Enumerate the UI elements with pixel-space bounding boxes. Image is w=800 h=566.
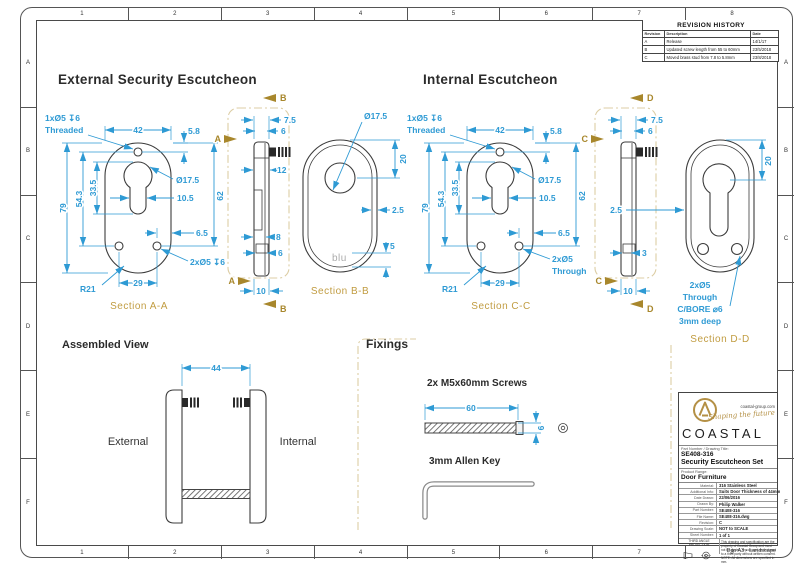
section-dd-caption: Section D-D	[690, 334, 749, 345]
dim-int-height: 79	[420, 203, 430, 213]
dim-bb-cylinder-dia: Ø17.5	[364, 111, 387, 121]
field-label: Sheet Number:	[679, 533, 717, 538]
section-label-c: C	[582, 134, 589, 144]
dim-ext-top-offset: 5.8	[188, 126, 200, 136]
dim-int-bottom-holes-1: 2xØ5	[552, 254, 573, 264]
dim-screw-dia: 6	[536, 425, 546, 430]
internal-side-view: 7.5 6 3 10 D D C C	[582, 93, 664, 314]
section-label-c: C	[596, 276, 603, 286]
allen-key	[425, 484, 532, 517]
dim-ext-slot-span: 33.5	[88, 179, 98, 196]
section-arrow-b-bottom	[263, 300, 276, 308]
field-label: Material:	[679, 483, 717, 488]
int-hole-note-1: 1xØ5 ↧6	[407, 113, 442, 123]
dim-dd-wall: 2.5	[610, 205, 622, 215]
section-arrow-a-top	[224, 135, 237, 143]
dim-screw-length: 60	[466, 403, 476, 413]
dim-dd-hole-top: 20	[763, 156, 773, 166]
title-block-logo-zone: COASTAL coastal-group.com Shaping the fu…	[679, 393, 777, 446]
dd-note-1: 2xØ5	[690, 280, 711, 290]
dim-int-width: 42	[495, 125, 505, 135]
dim-int-body-thickness: 6	[648, 126, 653, 136]
dd-note-3: C/BORE ⌀6	[677, 304, 723, 314]
section-bb-view: Ø17.5 20 2.5 5 blu Section B-B	[303, 111, 408, 297]
part-number: SE408-316	[679, 451, 777, 459]
dim-int-edge-offset: 6.5	[558, 228, 570, 238]
product-range: Door Furniture	[679, 474, 777, 484]
section-arrow-d-top	[630, 94, 643, 102]
dim-ext-slot-width: 10.5	[177, 193, 194, 203]
screw-thread	[425, 423, 516, 433]
field-value: NOT to SCALE	[717, 526, 777, 531]
field-value: SE408-316.dwg	[717, 514, 777, 519]
dim-ext-body-thickness: 6	[281, 126, 286, 136]
ext-hole-note-1: 1xØ5 ↧6	[45, 113, 80, 123]
dim-bb-wall: 2.5	[392, 205, 404, 215]
section-label-d: D	[647, 304, 654, 314]
dim-int-slot-width: 10.5	[539, 193, 556, 203]
dim-int-inner-height: 62	[577, 191, 587, 201]
field-label: Date Drawn:	[679, 495, 717, 500]
external-side-view: 7.5 6 12 8 6 10 B B	[215, 93, 297, 314]
dim-ext-radius: R21	[80, 284, 96, 294]
dim-ext-cylinder-dia: Ø17.5	[176, 175, 199, 185]
field-value: SE408-316	[717, 508, 777, 513]
section-arrow-d-bottom	[630, 300, 643, 308]
section-dd-view: 20 2.5 2xØ5 Through C/BORE ⌀6 3mm deep S…	[610, 140, 773, 345]
drawing-title: Security Escutcheon Set	[679, 459, 777, 469]
threaded-stud	[244, 398, 250, 407]
fixings-area: 60 6	[358, 339, 671, 530]
dim-assembled-gap: 44	[211, 363, 221, 373]
field-value: Suits Door Thickness of 44mm	[717, 489, 777, 494]
threaded-stud	[182, 398, 188, 407]
field-value: 22/06/2016	[717, 495, 777, 500]
field-label: Revision:	[679, 520, 717, 525]
field-value: C	[717, 520, 777, 525]
drawing-sheet: 1 2 3 4 5 6 7 8 1 2 3 4 5 6 7 8 A B C D …	[0, 0, 800, 566]
dim-ext-bottom-holes: 2xØ5 ↧6	[190, 257, 225, 267]
projection-label: THIRD ANGLE PROJECTION	[679, 539, 719, 548]
section-bb-caption: Section B-B	[311, 286, 369, 297]
external-front-view: 42 5.8 79 54.3 33.5 Ø17.5 10.5	[45, 113, 225, 312]
section-arrow-b-top	[263, 94, 276, 102]
dim-ext-recess: 8	[276, 232, 281, 242]
field-label: Part Number:	[679, 508, 717, 513]
field-value: 316 Stainless Steel	[717, 483, 777, 488]
dim-ext-holes-span: 54.3	[74, 190, 84, 207]
dim-int-top-offset: 5.8	[550, 126, 562, 136]
screw-head	[516, 422, 523, 435]
section-label-a: A	[229, 276, 236, 286]
title-block: COASTAL coastal-group.com Shaping the fu…	[678, 392, 778, 544]
section-cc-caption: Section C-C	[471, 301, 530, 312]
dim-ext-edge-offset: 6.5	[196, 228, 208, 238]
dim-ext-inner-height: 62	[215, 191, 225, 201]
threaded-stud	[636, 148, 643, 157]
dim-int-holes-width: 29	[495, 278, 505, 288]
paper-size-note: D in A3 - Landscape	[600, 548, 776, 554]
field-value: 1 of 1	[717, 533, 777, 538]
dim-ext-holes-width: 29	[133, 278, 143, 288]
dim-int-bottom-holes-2: Through	[552, 266, 586, 276]
dim-int-total-thickness: 7.5	[651, 115, 663, 125]
dim-ext-width: 42	[133, 125, 143, 135]
blu-engraving: blu	[332, 253, 347, 264]
field-label: File Name:	[679, 514, 717, 519]
int-hole-note-2: Threaded	[407, 125, 445, 135]
ext-hole-note-2: Threaded	[45, 125, 83, 135]
section-label-d: D	[647, 93, 654, 103]
assembled-view: 44	[166, 363, 266, 523]
section-label-b: B	[280, 93, 287, 103]
dim-ext-base: 10	[256, 286, 266, 296]
dim-int-slot-span: 33.5	[450, 179, 460, 196]
dim-ext-height: 79	[58, 203, 68, 213]
dim-int-stud: 3	[642, 248, 647, 258]
dim-int-base: 10	[623, 286, 633, 296]
section-arrow-c-top	[591, 135, 604, 143]
section-label-b: B	[280, 304, 287, 314]
dim-int-holes-span: 54.3	[436, 190, 446, 207]
field-label: Drawing Scale:	[679, 526, 717, 531]
dim-int-cylinder-dia: Ø17.5	[538, 175, 561, 185]
section-aa-caption: Section A-A	[110, 301, 168, 312]
dim-ext-stud-length: 12	[277, 165, 287, 175]
field-value: Philip Walker	[717, 502, 777, 507]
dim-ext-lower: 6	[278, 248, 283, 258]
threaded-stud	[269, 148, 276, 157]
dim-int-radius: R21	[442, 284, 458, 294]
field-label: Additional Info:	[679, 489, 717, 494]
internal-front-view: 42 5.8 79 54.3 33.5 Ø17.5 10.5 62	[407, 113, 587, 312]
brand-name: COASTAL	[682, 426, 764, 441]
dim-bb-hole-top: 20	[398, 154, 408, 164]
screw-end-view	[559, 424, 568, 433]
dd-note-4: 3mm deep	[679, 316, 721, 326]
connecting-screw	[182, 490, 250, 499]
section-label-a: A	[215, 134, 222, 144]
dd-note-2: Through	[683, 292, 717, 302]
dim-bb-logo-offset: 5	[390, 241, 395, 251]
field-label: Drawn By:	[679, 502, 717, 507]
dim-ext-total-thickness: 7.5	[284, 115, 296, 125]
